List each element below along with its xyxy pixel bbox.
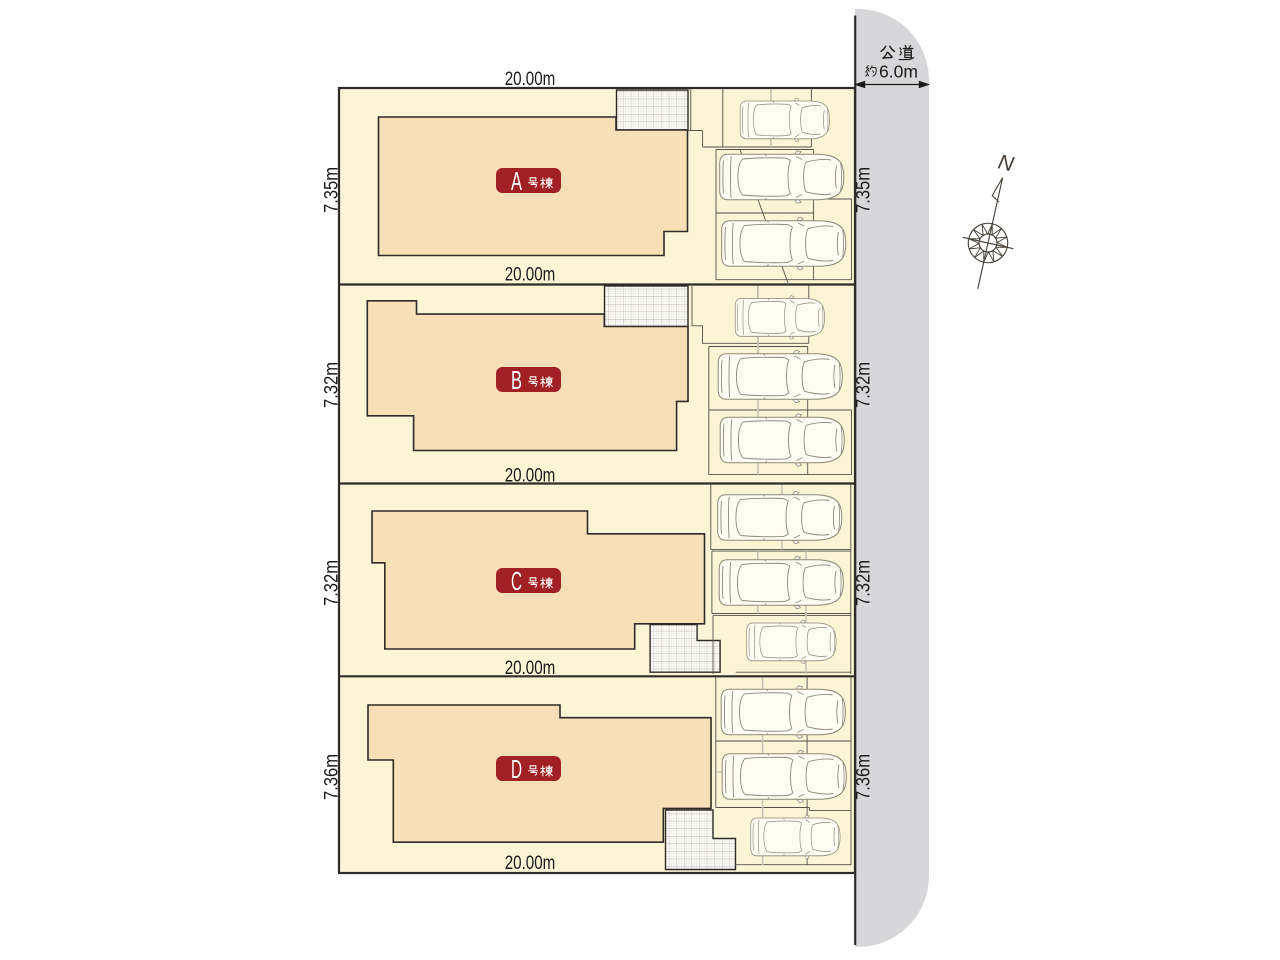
svg-text:20.00m: 20.00m bbox=[505, 68, 556, 90]
svg-text:D: D bbox=[511, 754, 522, 784]
svg-text:7.32m: 7.32m bbox=[853, 362, 875, 408]
svg-text:B: B bbox=[511, 365, 522, 395]
svg-text:7.32m: 7.32m bbox=[321, 560, 343, 606]
svg-text:C: C bbox=[511, 566, 522, 596]
svg-text:7.36m: 7.36m bbox=[853, 754, 875, 800]
svg-text:20.00m: 20.00m bbox=[505, 264, 556, 286]
svg-text:7.36m: 7.36m bbox=[321, 754, 343, 800]
svg-text:7.35m: 7.35m bbox=[321, 167, 343, 213]
svg-text:7.32m: 7.32m bbox=[853, 560, 875, 606]
svg-text:7.35m: 7.35m bbox=[853, 167, 875, 213]
svg-text:A: A bbox=[511, 166, 522, 196]
svg-text:20.00m: 20.00m bbox=[505, 852, 556, 874]
svg-text:6.0m: 6.0m bbox=[879, 62, 918, 82]
svg-text:7.32m: 7.32m bbox=[321, 362, 343, 408]
